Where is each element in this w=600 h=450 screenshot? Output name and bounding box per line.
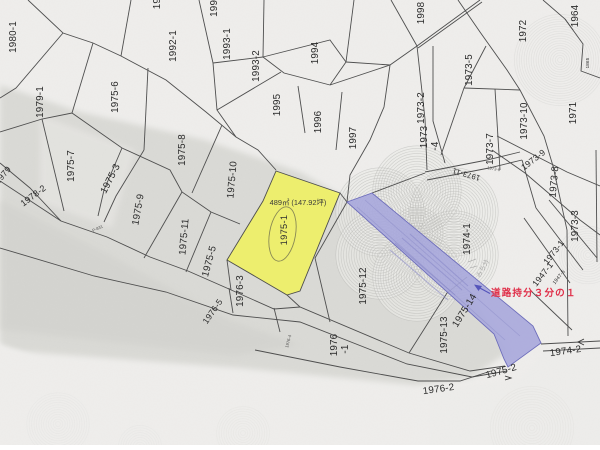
svg-text:1991: 1991: [152, 0, 163, 9]
svg-text:1976-3: 1976-3: [235, 275, 246, 307]
svg-text:1972: 1972: [518, 20, 529, 43]
svg-text:1974-1: 1974-1: [462, 223, 473, 255]
svg-text:1993-1: 1993-1: [209, 0, 220, 17]
svg-text:1996: 1996: [313, 110, 324, 133]
svg-text:1993-2: 1993-2: [251, 50, 262, 82]
svg-text:1980-1: 1980-1: [8, 21, 19, 53]
svg-text:道路持分３分の１: 道路持分３分の１: [491, 287, 577, 299]
svg-text:-1: -1: [340, 344, 351, 353]
svg-text:1998: 1998: [416, 1, 427, 24]
svg-text:1973-10: 1973-10: [519, 102, 530, 140]
svg-text:1994: 1994: [310, 41, 321, 64]
svg-text:1979-1: 1979-1: [35, 86, 46, 118]
svg-text:1975-1: 1975-1: [279, 215, 289, 246]
svg-text:1973-2: 1973-2: [416, 92, 427, 124]
svg-text:489㎡ (147.92坪): 489㎡ (147.92坪): [270, 198, 327, 207]
svg-text:1993-1: 1993-1: [222, 28, 233, 60]
svg-text:1975-12: 1975-12: [358, 267, 369, 304]
svg-text:1973-5: 1973-5: [464, 54, 475, 86]
svg-text:1975-8: 1975-8: [177, 134, 188, 166]
svg-text:1964: 1964: [570, 4, 581, 27]
svg-text:1992-1: 1992-1: [168, 30, 179, 62]
svg-text:1973-3: 1973-3: [570, 210, 581, 242]
svg-text:-4: -4: [430, 141, 441, 150]
svg-text:1975-6: 1975-6: [110, 81, 121, 113]
svg-text:1975-7: 1975-7: [66, 150, 77, 182]
svg-text:1865: 1865: [585, 57, 590, 68]
svg-text:1971: 1971: [568, 102, 579, 125]
svg-text:1973: 1973: [419, 125, 430, 148]
svg-text:1975-13: 1975-13: [439, 316, 450, 354]
svg-text:1976: 1976: [329, 333, 340, 356]
svg-text:1997: 1997: [348, 127, 359, 150]
svg-text:1973-7: 1973-7: [485, 133, 496, 165]
svg-text:1995: 1995: [272, 93, 283, 116]
